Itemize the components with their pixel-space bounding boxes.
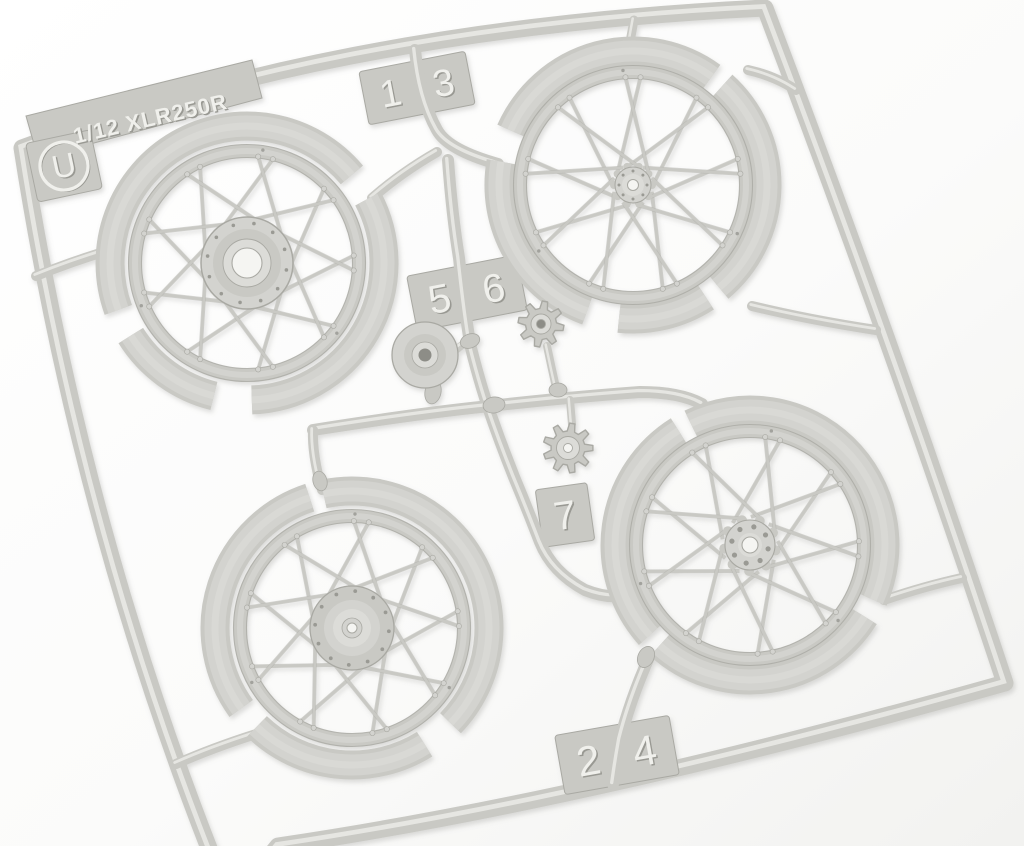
hub-cone-part xyxy=(392,322,458,388)
hub-bolt-hole xyxy=(632,170,635,173)
spoke-nipple xyxy=(755,651,760,656)
sprue-runner-svg: 1/12 XLR250R 1/12 XLR250R U U 1 1 3 3 5 … xyxy=(0,0,1024,846)
spoke-nipple xyxy=(838,481,843,486)
hub-bolt-hole xyxy=(744,560,749,565)
rim-pinhole xyxy=(736,232,739,235)
hub-bolt-hole xyxy=(317,642,321,646)
spoke-nipple xyxy=(197,164,202,169)
spoke-nipple xyxy=(197,357,202,362)
spoke-nipple xyxy=(601,286,606,291)
spoke-nipple xyxy=(703,443,708,448)
rim-pinhole xyxy=(537,249,540,252)
spoke-nipple xyxy=(738,171,743,176)
hub-bolt-hole xyxy=(765,546,770,551)
runner-bulge xyxy=(549,383,567,397)
spoke-nipple xyxy=(142,290,147,295)
spoke-nipple xyxy=(623,75,628,80)
hub-bolt-hole xyxy=(276,287,280,291)
spoke-nipple xyxy=(638,75,643,80)
spoke-nipple xyxy=(351,518,356,523)
cone-hole xyxy=(419,349,432,362)
spoke-nipple xyxy=(696,639,701,644)
spoke-nipple xyxy=(256,677,261,682)
spoke-nipple xyxy=(420,545,425,550)
spoke-nipple xyxy=(720,243,725,248)
rim-pinhole xyxy=(770,429,773,432)
rim-pinhole xyxy=(140,304,143,307)
hub-axle-hole xyxy=(232,248,262,278)
spoke-nipple xyxy=(351,253,356,258)
rim-pinhole xyxy=(250,681,253,684)
hub-bolt-hole xyxy=(763,532,768,537)
hub-bolt-hole xyxy=(618,184,621,187)
hub-bolt-hole xyxy=(208,275,212,279)
hub-axle-hole xyxy=(347,623,357,633)
hub-bolt-hole xyxy=(646,184,649,187)
spoke-nipple xyxy=(311,725,316,730)
spoke-nipple xyxy=(541,243,546,248)
sprocket-hole xyxy=(537,320,546,329)
hub-bolt-hole xyxy=(622,193,625,196)
spoke xyxy=(314,638,316,728)
spoke-nipple xyxy=(250,664,255,669)
hub-bolt-hole xyxy=(238,301,242,305)
spoke-nipple xyxy=(331,323,336,328)
hub-bolt-hole xyxy=(215,235,219,239)
sprocket-hole xyxy=(564,444,573,453)
spoke-nipple xyxy=(660,286,665,291)
hub-bolt-hole xyxy=(366,660,370,664)
spoke-nipple xyxy=(294,534,299,539)
spoke-nipple xyxy=(370,730,375,735)
hub-bolt-hole xyxy=(632,198,635,201)
spoke-nipple xyxy=(727,230,732,235)
hub-bolt-hole xyxy=(329,656,333,660)
spoke-nipple xyxy=(384,727,389,732)
spoke-nipple xyxy=(833,610,838,615)
spoke-nipple xyxy=(694,95,699,100)
hub-bolt-hole xyxy=(380,647,384,651)
rim-pinhole xyxy=(639,582,642,585)
spoke-nipple xyxy=(674,281,679,286)
spoke-nipple xyxy=(770,649,775,654)
rim-pinhole xyxy=(353,512,356,515)
rim-pinhole xyxy=(836,619,839,622)
hub-bolt-hole xyxy=(387,629,391,633)
rim-pinhole xyxy=(621,69,624,72)
hub-bolt-hole xyxy=(283,248,287,252)
spoke-nipple xyxy=(828,469,833,474)
hub-bolt-hole xyxy=(320,605,324,609)
hub-bolt-hole xyxy=(729,539,734,544)
spoke-nipple xyxy=(430,555,435,560)
spoke-nipple xyxy=(270,157,275,162)
rim-pinhole xyxy=(261,148,264,151)
hub-bolt-hole xyxy=(285,268,289,272)
hub-bolt-hole xyxy=(313,623,317,627)
spoke-nipple xyxy=(142,231,147,236)
spoke-nipple xyxy=(777,438,782,443)
hub-bolt-hole xyxy=(384,610,388,614)
rim-pinhole xyxy=(335,331,338,334)
spoke-nipple xyxy=(567,95,572,100)
spoke-nipple xyxy=(690,450,695,455)
spoke-nipple xyxy=(185,349,190,354)
hub-bolt-hole xyxy=(641,193,644,196)
spoke-nipple xyxy=(646,583,651,588)
spoke-nipple xyxy=(705,105,710,110)
hub-bolt-hole xyxy=(252,222,256,226)
spoke-nipple xyxy=(455,609,460,614)
spoke-nipple xyxy=(321,186,326,191)
spoke-nipple xyxy=(523,171,528,176)
spoke-nipple xyxy=(526,156,531,161)
hub-bolt-hole xyxy=(271,231,275,235)
spoke-nipple xyxy=(256,367,261,372)
hub-bolt-hole xyxy=(751,524,756,529)
hub-bolt-hole xyxy=(347,663,351,667)
hub-bolt-hole xyxy=(219,292,223,296)
hub-bolt-hole xyxy=(757,558,762,563)
spoke-nipple xyxy=(683,631,688,636)
spoke-nipple xyxy=(147,304,152,309)
spoke-nipple xyxy=(331,198,336,203)
hub-bolt-hole xyxy=(622,174,625,177)
hub-axle-hole xyxy=(742,537,758,553)
spoke-nipple xyxy=(644,509,649,514)
spoke-nipple xyxy=(282,542,287,547)
sprue-photo: 1/12 XLR250R 1/12 XLR250R U U 1 1 3 3 5 … xyxy=(0,0,1024,846)
spoke-nipple xyxy=(256,154,261,159)
rim-pinhole xyxy=(448,686,451,689)
spoke-nipple xyxy=(735,156,740,161)
spoke-nipple xyxy=(185,172,190,177)
spoke-nipple xyxy=(244,605,249,610)
spoke-nipple xyxy=(298,719,303,724)
hub-bolt-hole xyxy=(641,174,644,177)
hub-bolt-hole xyxy=(334,593,338,597)
spoke-nipple xyxy=(433,693,438,698)
spoke-nipple xyxy=(456,624,461,629)
spoke-nipple xyxy=(321,335,326,340)
spoke-nipple xyxy=(147,217,152,222)
hub-bolt-hole xyxy=(371,596,375,600)
spoke-nipple xyxy=(823,621,828,626)
hub-bolt-hole xyxy=(206,254,210,258)
spoke-nipple xyxy=(351,268,356,273)
hub-bolt-hole xyxy=(353,589,357,593)
spoke-nipple xyxy=(555,105,560,110)
spoke-nipple xyxy=(856,539,861,544)
spoke-nipple xyxy=(270,364,275,369)
spoke-nipple xyxy=(649,495,654,500)
spoke-nipple xyxy=(856,554,861,559)
hub-bolt-hole xyxy=(737,527,742,532)
spoke-nipple xyxy=(366,520,371,525)
spoke-nipple xyxy=(763,434,768,439)
hub-bolt-hole xyxy=(732,552,737,557)
spoke-nipple xyxy=(586,281,591,286)
spoke-nipple xyxy=(248,591,253,596)
spoke xyxy=(252,665,342,667)
spoke-nipple xyxy=(533,230,538,235)
hub-bolt-hole xyxy=(232,224,236,228)
spoke-nipple xyxy=(642,569,647,574)
hub-axle-hole xyxy=(628,180,639,191)
hub-bolt-hole xyxy=(259,299,263,303)
spoke-nipple xyxy=(441,681,446,686)
